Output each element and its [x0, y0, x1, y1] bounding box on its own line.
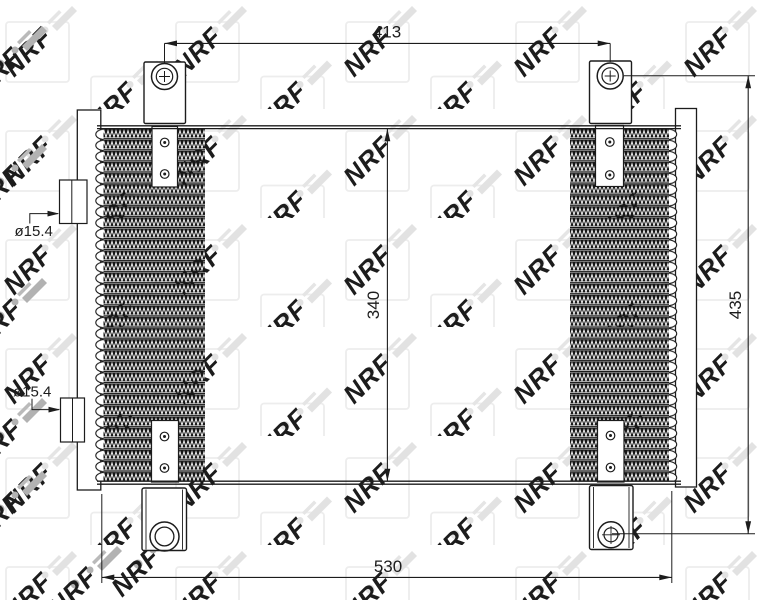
- dim-413-label: 413: [373, 23, 401, 42]
- bottom-left-mounting-bracket: [142, 488, 187, 551]
- bottom-right-mounting-bracket: [590, 486, 634, 550]
- drawing-canvas: NRF NRF NRF: [0, 0, 764, 600]
- upper-port: [60, 180, 88, 224]
- core-left-scalloped-edge: [90, 129, 104, 481]
- dim-435-label: 435: [726, 291, 745, 319]
- dim-340-label: 340: [364, 291, 383, 319]
- lower-port: [61, 398, 85, 442]
- condenser-technical-drawing: NRF NRF NRF: [0, 0, 764, 600]
- core-right-scalloped-edge: [669, 129, 683, 481]
- upper-port-diameter-label: ø15.4: [15, 223, 53, 240]
- bottom-right-bracket-flange: [598, 421, 625, 483]
- lower-port-diameter-label: ø15.4: [13, 384, 51, 401]
- top-left-mounting-bracket: [144, 62, 186, 124]
- top-right-mounting-bracket: [590, 61, 632, 124]
- dim-530-label: 530: [374, 557, 402, 576]
